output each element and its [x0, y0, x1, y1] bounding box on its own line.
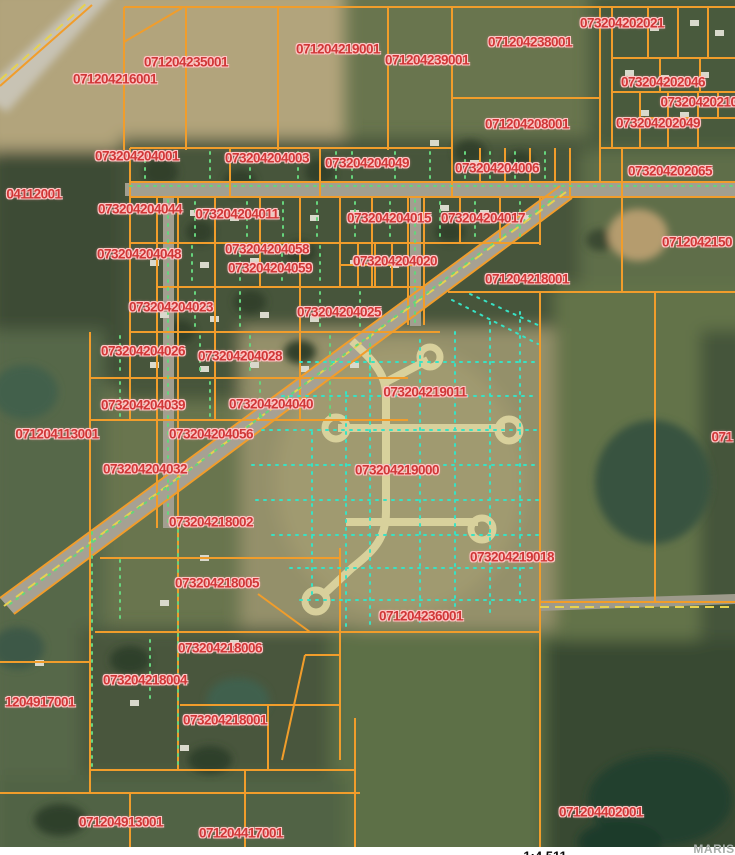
- parcel-label[interactable]: 1204917001: [5, 695, 75, 710]
- parcel-label[interactable]: 073204202065: [628, 164, 712, 179]
- parcel-label[interactable]: 073204204025: [297, 305, 381, 320]
- parcel-label[interactable]: 073204204048: [97, 247, 181, 262]
- parcel-label[interactable]: 073204204056: [169, 427, 253, 442]
- maris-watermark: MARIS: [693, 842, 734, 855]
- parcel-label[interactable]: 073204218005: [175, 576, 259, 591]
- parcel-label[interactable]: 073204218006: [178, 641, 262, 656]
- parcel-label[interactable]: 073204218004: [103, 673, 187, 688]
- parcel-label[interactable]: 073204204039: [101, 398, 185, 413]
- parcel-label[interactable]: 071204417001: [199, 826, 283, 841]
- parcel-label[interactable]: 073204204044: [98, 202, 182, 217]
- parcel-label[interactable]: 073204219018: [470, 550, 554, 565]
- parcel-label[interactable]: 073204218002: [169, 515, 253, 530]
- parcel-label[interactable]: 071204218001: [485, 272, 569, 287]
- parcel-label[interactable]: 073204202046: [621, 75, 705, 90]
- parcel-label[interactable]: 073204204032: [103, 462, 187, 477]
- parcel-label[interactable]: 071204208001: [485, 117, 569, 132]
- parcel-label[interactable]: 073204204011: [195, 207, 278, 222]
- parcel-label[interactable]: 073204218001: [183, 713, 267, 728]
- parcel-label[interactable]: 071204235001: [144, 55, 228, 70]
- parcel-label[interactable]: 073204219011: [383, 385, 466, 400]
- parcel-label[interactable]: 0712042150: [662, 235, 732, 250]
- parcel-label[interactable]: 073204204026: [101, 344, 185, 359]
- parcel-label[interactable]: 071204239001: [385, 53, 469, 68]
- parcel-label[interactable]: 073204202021: [580, 16, 664, 31]
- parcel-label[interactable]: 073204204001: [95, 149, 179, 164]
- parcel-label[interactable]: 071204219001: [296, 42, 380, 57]
- parcel-label[interactable]: 071204236001: [379, 609, 463, 624]
- parcel-label[interactable]: 073204204040: [229, 397, 313, 412]
- parcel-label[interactable]: 071204913001: [79, 815, 163, 830]
- parcel-label[interactable]: 073204204058: [225, 242, 309, 257]
- parcel-label[interactable]: 073204204015: [347, 211, 431, 226]
- parcel-label[interactable]: 071204216001: [73, 72, 157, 87]
- parcel-label[interactable]: 073204204017: [441, 211, 525, 226]
- map-bottom-margin: [0, 847, 735, 855]
- parcel-label[interactable]: 073204202049: [616, 116, 700, 131]
- parcel-label[interactable]: 04112001: [6, 187, 61, 202]
- parcel-label[interactable]: 07320420210: [660, 95, 735, 110]
- map-canvas[interactable]: 0712042160010712042350010712042190010712…: [0, 0, 735, 855]
- parcel-label[interactable]: 073204204006: [455, 161, 539, 176]
- parcel-label[interactable]: 073204204059: [228, 261, 312, 276]
- parcel-label[interactable]: 073204204020: [353, 254, 437, 269]
- parcel-label[interactable]: 071204238001: [488, 35, 572, 50]
- parcel-label-layer: 0712042160010712042350010712042190010712…: [0, 0, 735, 855]
- parcel-label[interactable]: 071204113001: [15, 427, 98, 442]
- parcel-label[interactable]: 073204204003: [225, 151, 309, 166]
- map-scale-text: 1:4,511: [523, 849, 566, 855]
- parcel-label[interactable]: 073204204028: [198, 349, 282, 364]
- parcel-label[interactable]: 073204219000: [355, 463, 439, 478]
- parcel-label[interactable]: 073204204049: [325, 156, 409, 171]
- parcel-label[interactable]: 071: [711, 430, 732, 445]
- parcel-label[interactable]: 071204402001: [559, 805, 643, 820]
- parcel-label[interactable]: 073204204023: [129, 300, 213, 315]
